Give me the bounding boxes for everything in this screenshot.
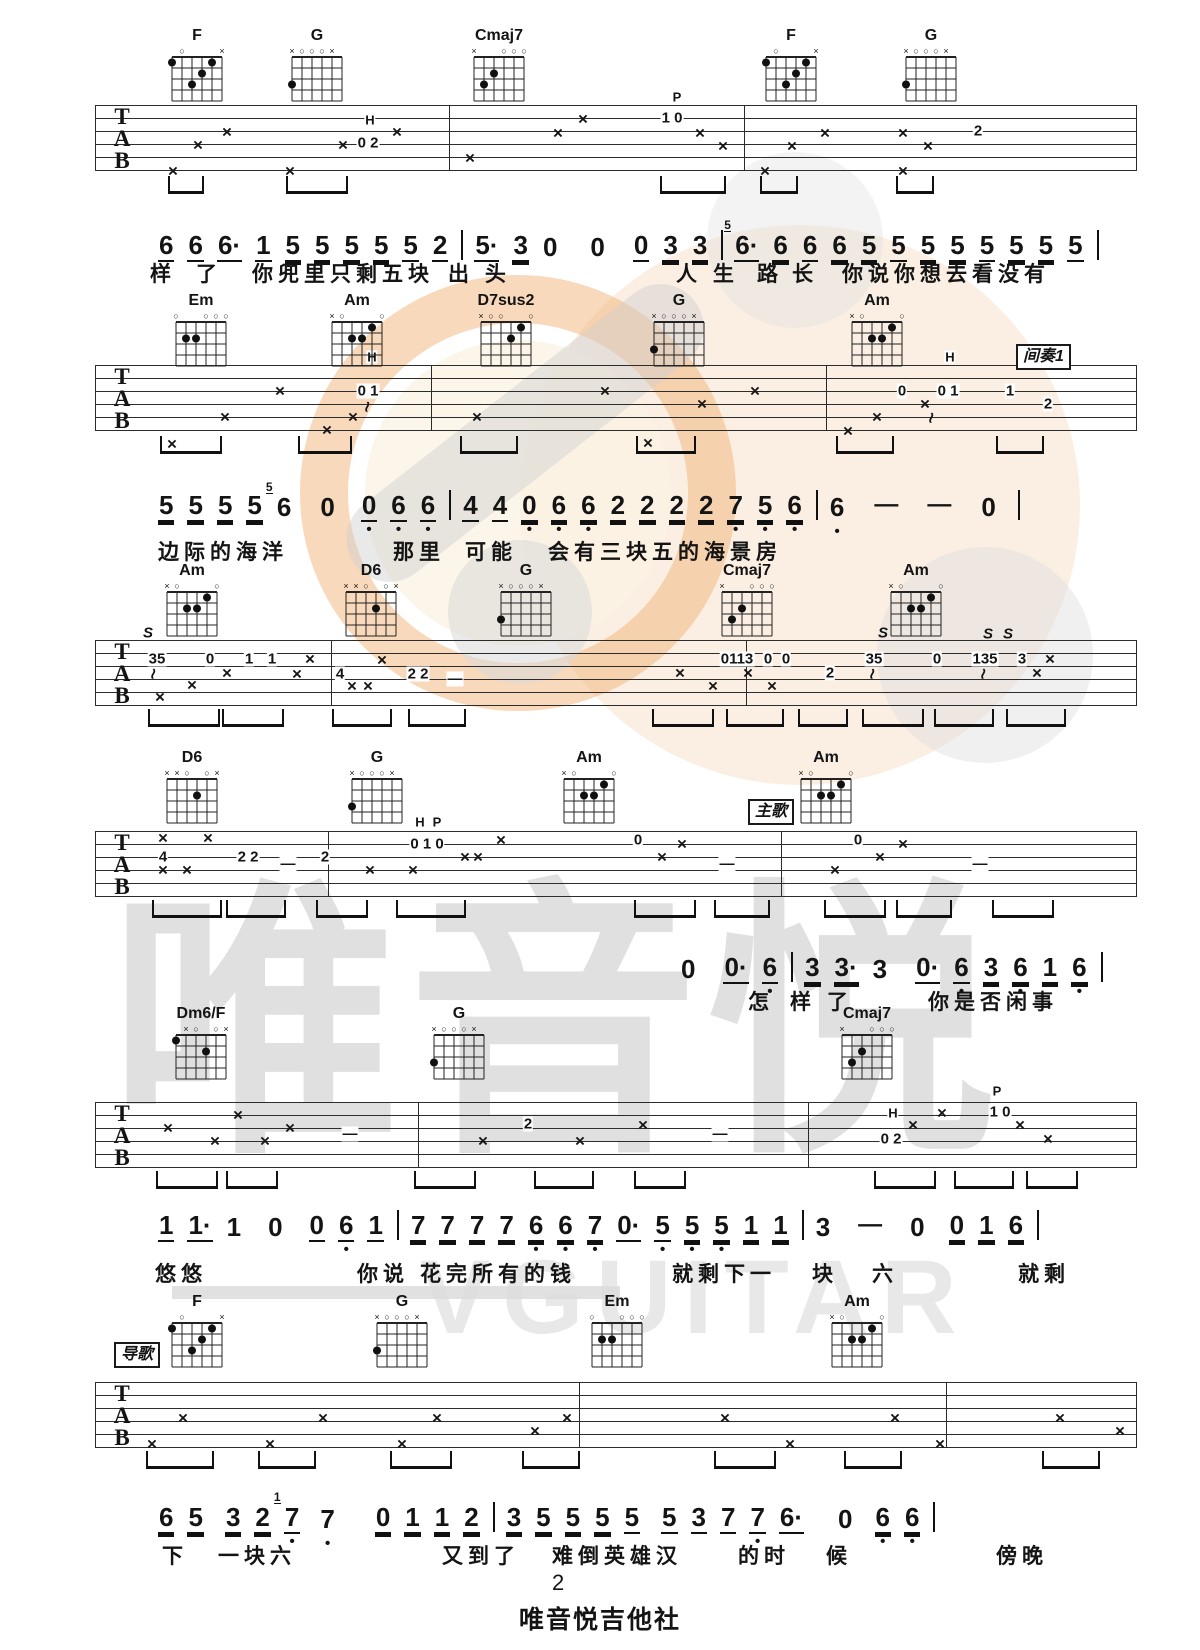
fret-number: — (719, 857, 736, 872)
beam-bracket (896, 176, 934, 194)
staff-line (96, 896, 1136, 897)
chord-diagram: Am×○○ (828, 1294, 886, 1375)
staff-line (96, 692, 1136, 693)
lyric-phrase: 的时 (738, 1544, 790, 1569)
melody-note: 5 (565, 1503, 581, 1534)
staff-line (96, 1141, 1136, 1142)
melody-note: 3 (983, 953, 999, 984)
chord-diagram: D7sus2×○○○ (477, 293, 535, 374)
technique-letter: H (364, 114, 375, 127)
svg-text:○: ○ (394, 1312, 399, 1322)
mute-x-mark: × (787, 138, 797, 155)
chord-diagram: Dm6/F×○○× (172, 1006, 230, 1087)
mute-x-mark: × (158, 862, 168, 879)
staff-letter-B: B (110, 684, 134, 707)
melody-note: 5 (217, 491, 233, 522)
mute-x-mark: × (233, 1107, 243, 1124)
melody-note: 7• (727, 491, 743, 522)
svg-text:×: × (414, 1312, 419, 1322)
svg-text:×: × (719, 581, 724, 591)
melody-note: 6• (762, 953, 778, 984)
mute-x-mark: × (935, 1436, 945, 1453)
svg-text:○: ○ (461, 1024, 466, 1034)
mute-x-mark: × (147, 1436, 157, 1453)
fret-number: 0 (633, 833, 643, 848)
octave-dot: • (719, 1242, 724, 1257)
staff-line (96, 640, 1136, 641)
svg-text:×: × (393, 581, 398, 591)
chord-name: G (288, 28, 346, 44)
melody-barline (933, 1502, 935, 1532)
staff-letter-T: T (110, 365, 134, 388)
fret-number: 2 (1043, 397, 1053, 412)
melody-spacer (349, 1533, 375, 1534)
chord-grid: ×○○× (172, 1022, 230, 1082)
fret-number: 0 (763, 652, 773, 667)
svg-text:×: × (219, 1312, 224, 1322)
fret-number: — (712, 1127, 729, 1142)
svg-text:×: × (651, 311, 656, 321)
melody-note: 6 (772, 231, 788, 262)
chord-name: Cmaj7 (838, 1006, 896, 1022)
melody-note: 65 (276, 493, 292, 522)
staff-line (96, 1128, 1136, 1129)
fret-number: — (447, 672, 464, 687)
lyric-phrase: 可能 (465, 540, 517, 565)
melody-spacer (305, 521, 319, 522)
svg-text:×: × (164, 581, 169, 591)
svg-text:○: ○ (498, 311, 503, 321)
fret-number: 1 (1005, 384, 1015, 399)
chord-name: G (497, 563, 555, 579)
beam-bracket (286, 176, 348, 194)
beam-bracket (298, 436, 352, 454)
melody-note: 3 (506, 1503, 522, 1534)
technique-letter: H (414, 816, 425, 829)
beam-bracket (862, 709, 924, 727)
section-badge: 主歌 (748, 799, 794, 825)
svg-text:○: ○ (451, 1024, 456, 1034)
chord-grid: ○○○○ (172, 309, 230, 369)
svg-text:○: ○ (681, 311, 686, 321)
melody-note: 0 (267, 1213, 283, 1242)
mute-x-mark: × (1032, 665, 1042, 682)
svg-text:×: × (214, 768, 219, 778)
melody-note: 4 (492, 491, 508, 522)
fret-number: 2 (523, 1117, 533, 1132)
melody-note: 3 (815, 1213, 831, 1242)
mute-x-mark: × (575, 1133, 585, 1150)
mute-x-mark: × (285, 1120, 295, 1137)
lyric-phrase: 那里 (393, 540, 445, 565)
melody-spacer (817, 1533, 837, 1534)
staff-line (96, 118, 1136, 119)
octave-dot: • (660, 1242, 665, 1257)
melody-note: 5 (535, 1503, 551, 1534)
beam-bracket (636, 436, 696, 454)
mute-x-mark: × (820, 125, 830, 142)
chord-grid: ×○○○× (348, 766, 406, 826)
staff-letter-T: T (110, 831, 134, 854)
svg-text:○: ○ (383, 581, 388, 591)
staff-line (96, 1447, 1136, 1448)
staff-letter-A: A (110, 1404, 134, 1427)
melody-note: 6• (1012, 953, 1028, 984)
technique-letter: P (992, 1085, 1003, 1098)
melody-note: 6 (158, 1503, 174, 1534)
chord-name: F (762, 28, 820, 44)
melody-note: 2 (639, 491, 655, 522)
octave-dot: • (689, 1242, 694, 1257)
melody-barline (816, 490, 818, 520)
fret-number: 0 (205, 652, 215, 667)
mute-x-mark: × (318, 1410, 328, 1427)
mute-x-mark: × (898, 836, 908, 853)
svg-text:○: ○ (359, 768, 364, 778)
chord-diagram: Am×○○ (163, 563, 221, 644)
melody-note: 5• (713, 1211, 729, 1242)
melody-note: 6 (187, 231, 203, 262)
mute-x-mark: × (562, 1410, 572, 1427)
fret-number: 1 0 (989, 1105, 1012, 1120)
svg-text:○: ○ (179, 1312, 184, 1322)
chord-grid: ×○○○× (902, 44, 960, 104)
barline (418, 1102, 419, 1167)
svg-text:○: ○ (518, 581, 523, 591)
melody-note: 5 (285, 231, 301, 262)
mute-x-mark: × (785, 1436, 795, 1453)
fret-number: 0 (853, 833, 863, 848)
svg-text:×: × (849, 311, 854, 321)
beam-bracket (1006, 709, 1066, 727)
melody-note: 5 (187, 1503, 203, 1534)
staff-line (96, 170, 1136, 171)
melody-note: 3 (691, 1503, 707, 1534)
melody-note: 2 (463, 1503, 479, 1534)
svg-text:○: ○ (193, 1024, 198, 1034)
octave-dot: • (792, 522, 797, 537)
melody-note: 5 (594, 1503, 610, 1534)
mute-x-mark: × (638, 1117, 648, 1134)
melody-note: 2 (698, 491, 714, 522)
melody-spacer (297, 1241, 309, 1242)
melody-barline (1037, 1210, 1039, 1240)
svg-text:×: × (289, 46, 294, 56)
melody-spacer (619, 261, 633, 262)
beam-bracket (634, 900, 696, 918)
staff-line (96, 1382, 1136, 1383)
melody-spacer (867, 1533, 875, 1534)
grace-note: 1 (274, 1491, 281, 1504)
chord-grid: ×○○ (163, 579, 221, 639)
melody-spacer (709, 983, 723, 984)
staff-line (96, 1395, 1136, 1396)
melody-note: 0 (633, 231, 649, 262)
svg-text:×: × (561, 768, 566, 778)
staff-line (96, 404, 1136, 405)
lyric-phrase: 路 (757, 262, 783, 287)
staff-line (96, 430, 1136, 431)
svg-text:○: ○ (808, 768, 813, 778)
melody-note: 6• (528, 1211, 544, 1242)
beam-bracket (152, 900, 222, 918)
svg-text:○: ○ (629, 1312, 634, 1322)
melody-note: 5• (757, 491, 773, 522)
svg-text:○: ○ (339, 311, 344, 321)
mute-x-mark: × (363, 678, 373, 695)
melody-barline (493, 1502, 495, 1532)
melody-note: 3· (834, 953, 859, 984)
chord-diagram: G×○○○× (288, 28, 346, 109)
mute-x-mark: × (222, 124, 232, 141)
chord-diagram: Am×○○ (328, 293, 386, 374)
beam-bracket (222, 709, 284, 727)
mute-x-mark: × (1115, 1423, 1125, 1440)
octave-dot: • (563, 1242, 568, 1257)
chord-diagram: D6××○○× (163, 750, 221, 831)
melody-note: 5 (343, 231, 359, 262)
melody-note: 0· (616, 1211, 641, 1242)
lyric-phrase: 六 (872, 1262, 898, 1287)
svg-text:○: ○ (859, 311, 864, 321)
melody-note: 5 (314, 231, 330, 262)
svg-text:○: ○ (528, 581, 533, 591)
melody-note: 7• (587, 1211, 603, 1242)
beam-bracket (652, 709, 714, 727)
mute-x-mark: × (472, 409, 482, 426)
chord-grid: ××○○× (342, 579, 400, 639)
mute-x-mark: × (348, 409, 358, 426)
beam-bracket (844, 1451, 902, 1469)
mute-x-mark: × (158, 830, 168, 847)
staff-letter-B: B (110, 409, 134, 432)
beam-bracket (316, 900, 368, 918)
melody-line: 666·15555525·3000336·566655555555 (158, 226, 1110, 262)
staff-letter-B: B (110, 149, 134, 172)
svg-text:×: × (329, 46, 334, 56)
chord-diagram: Am×○○ (797, 750, 855, 831)
melody-barline (791, 952, 793, 982)
svg-text:○: ○ (508, 581, 513, 591)
fret-number: 2 (825, 666, 835, 681)
staff-line (96, 144, 1136, 145)
chord-name: Em (172, 293, 230, 309)
chord-grid: ××○○× (163, 766, 221, 826)
svg-text:○: ○ (661, 311, 666, 321)
melody-note: 6· (217, 231, 242, 262)
fret-number: 1 (267, 652, 277, 667)
melody-note: 1 (434, 1503, 450, 1534)
mute-x-mark: × (392, 124, 402, 141)
beam-bracket (414, 1171, 476, 1189)
slide-symbol: S (143, 626, 153, 641)
melody-note: 0 (542, 233, 558, 262)
fret-number: 0 2 (357, 136, 380, 151)
octave-dot: • (344, 1242, 349, 1257)
chord-grid: ×○○○× (430, 1022, 488, 1082)
melody-note: 1 (743, 1211, 759, 1242)
melody-dash: — (858, 1208, 882, 1242)
mute-x-mark: × (553, 125, 563, 142)
melody-note: 71• (284, 1503, 300, 1534)
beam-bracket (148, 709, 220, 727)
svg-text:○: ○ (384, 1312, 389, 1322)
melody-note: 2 (254, 1503, 270, 1534)
mute-x-mark: × (708, 678, 718, 695)
staff-letter-B: B (110, 875, 134, 898)
barline (331, 640, 332, 705)
fret-number: 2 2 (407, 667, 430, 682)
melody-note: 6• (420, 491, 436, 522)
beam-bracket (168, 176, 204, 194)
chord-grid: ×○○○× (373, 1310, 431, 1370)
beam-bracket (760, 176, 798, 194)
melody-note: 5 (661, 1503, 677, 1534)
melody-note: 2 (669, 491, 685, 522)
beam-bracket (226, 1171, 278, 1189)
score-layer: TAB×××××××××H0 2×××××P1 0×××2F○×G×○○○×Cm… (0, 0, 1200, 1650)
staff-letter-B: B (110, 1146, 134, 1169)
svg-text:×: × (374, 1312, 379, 1322)
melody-note: 6 (831, 231, 847, 262)
svg-text:○: ○ (839, 1312, 844, 1322)
melody-note: 1 (226, 1213, 242, 1242)
chord-name: G (373, 1294, 431, 1310)
lyric-phrase: 出 头 (448, 262, 511, 287)
mute-x-mark: × (872, 409, 882, 426)
beam-bracket (896, 900, 952, 918)
mute-x-mark: × (187, 677, 197, 694)
barline (826, 365, 827, 430)
chord-name: Dm6/F (172, 1006, 230, 1022)
svg-text:×: × (431, 1024, 436, 1034)
fret-number: 3 (1017, 652, 1027, 667)
chord-diagram: G×○○○× (373, 1294, 431, 1375)
melody-note: 0 (375, 1503, 391, 1534)
melody-note: 0 (949, 1211, 965, 1242)
staff-line (96, 365, 1136, 366)
staff-line (96, 417, 1136, 418)
chord-grid: ×○○○ (477, 309, 535, 369)
svg-text:×: × (349, 768, 354, 778)
staff-letter-A: A (110, 387, 134, 410)
melody-note: 5 (890, 231, 906, 262)
chord-grid: ×○○○ (718, 579, 776, 639)
melody-note: 1 (367, 1211, 383, 1242)
octave-dot: • (396, 522, 401, 537)
chord-diagram: G×○○○× (430, 1006, 488, 1087)
octave-dot: • (586, 522, 591, 537)
fret-number: — (342, 1127, 359, 1142)
svg-text:○: ○ (379, 311, 384, 321)
barline (449, 105, 450, 170)
melody-note: 5 (373, 231, 389, 262)
beam-bracket (408, 709, 466, 727)
staff-letter-A: A (110, 662, 134, 685)
melody-note: 5 (920, 231, 936, 262)
svg-text:×: × (223, 1024, 228, 1034)
staff-line (96, 1154, 1136, 1155)
grace-note: 5 (266, 481, 273, 494)
mute-x-mark: × (898, 125, 908, 142)
staff-line (96, 1408, 1136, 1409)
octave-dot: • (1077, 984, 1082, 999)
chord-diagram: F○× (168, 28, 226, 109)
chord-grid: ×○○○ (470, 44, 528, 104)
tab-staff: TAB (95, 365, 1137, 431)
mute-x-mark: × (338, 137, 348, 154)
barline (808, 1102, 809, 1167)
melody-note: 3 (804, 953, 820, 984)
svg-text:○: ○ (639, 1312, 644, 1322)
tab-staff: TAB (95, 1102, 1137, 1168)
melody-note: 7 (498, 1211, 514, 1242)
melody-spacer (901, 983, 915, 984)
melody-note: 5 (1008, 231, 1024, 262)
mute-x-mark: × (210, 1133, 220, 1150)
svg-text:○: ○ (174, 581, 179, 591)
chord-name: Cmaj7 (718, 563, 776, 579)
svg-text:×: × (903, 46, 908, 56)
chord-name: Am (560, 750, 618, 766)
fret-number: 2 (320, 850, 330, 865)
chord-grid: ×○○○× (497, 579, 555, 639)
svg-text:○: ○ (938, 581, 943, 591)
melody-note: 6• (786, 491, 802, 522)
octave-dot: • (880, 1534, 885, 1549)
chord-diagram: F○× (762, 28, 820, 109)
fret-number: 0 1 (937, 384, 960, 399)
svg-text:×: × (798, 768, 803, 778)
melody-note: 1 (158, 1211, 174, 1242)
svg-text:○: ○ (913, 46, 918, 56)
melody-note: 6 (158, 231, 174, 262)
staff-line (96, 705, 1136, 706)
chord-diagram: D6××○○× (342, 563, 400, 644)
lyric-phrase: 下 (162, 1544, 188, 1569)
chord-name: Am (797, 750, 855, 766)
chord-name: G (430, 1006, 488, 1022)
melody-note: 7 (720, 1503, 736, 1534)
mute-x-mark: × (265, 1436, 275, 1453)
mute-x-mark: × (530, 1423, 540, 1440)
melody-note: 5• (654, 1211, 670, 1242)
chord-name: D6 (342, 563, 400, 579)
melody-note: 0 (680, 955, 696, 984)
beam-bracket (396, 900, 466, 918)
fret-number: — (280, 857, 297, 872)
mute-x-mark: × (292, 666, 302, 683)
chord-name: F (168, 1294, 226, 1310)
technique-letter: H (944, 351, 955, 364)
melody-note: 0 (837, 1505, 853, 1534)
staff-line (96, 1167, 1136, 1168)
staff-line (96, 378, 1136, 379)
staff-letter-B: B (110, 1426, 134, 1449)
chord-grid: ○× (168, 44, 226, 104)
melody-note: 5 (861, 231, 877, 262)
melody-barline (397, 1210, 399, 1240)
svg-text:×: × (471, 1024, 476, 1034)
melody-note: 5 (979, 231, 995, 262)
melody-note: 0• (521, 491, 537, 522)
melody-note: 7 (410, 1211, 426, 1242)
melody-note: 2 (432, 231, 448, 262)
melody-note: 6 (802, 231, 818, 262)
chord-grid: ×○○ (328, 309, 386, 369)
chord-grid: ○× (168, 1310, 226, 1370)
mute-x-mark: × (408, 862, 418, 879)
